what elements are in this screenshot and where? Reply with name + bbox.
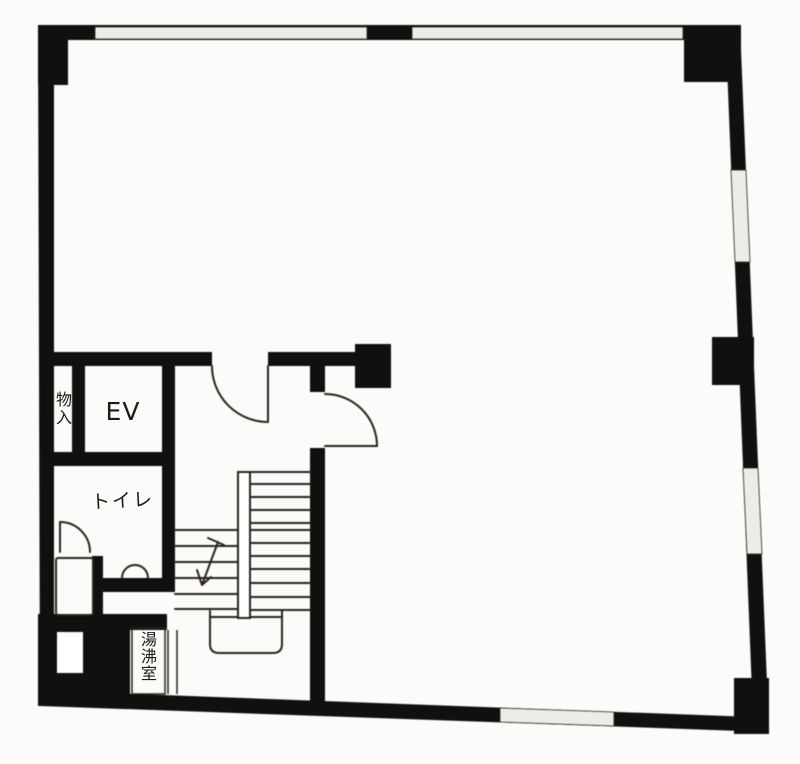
window-right-upper (731, 170, 750, 262)
elevator-right-wall (162, 366, 175, 592)
window-right-lower (743, 468, 762, 554)
door-hall-swing-arc (212, 366, 268, 422)
room-label-elevator: EV (97, 397, 149, 426)
stair-treads-left-flight (175, 546, 238, 609)
hall-right-wall-upper (310, 352, 325, 392)
bottom-left-alcove (57, 632, 83, 673)
core-top-wall-left (54, 352, 212, 366)
elevator-bottom-wall (54, 452, 175, 466)
toilet-bowl-icon (122, 565, 148, 578)
washstand (56, 558, 93, 615)
staircase (175, 472, 310, 653)
door-toilet (60, 522, 90, 552)
room-label-kitchenette: 湯沸室 (135, 631, 159, 695)
window-top-right (412, 27, 683, 39)
door-hall (212, 366, 268, 422)
hall-right-wall-lower (310, 448, 325, 702)
window-bottom (500, 708, 614, 726)
window-top-left (95, 27, 367, 39)
toilet-bottom-wall (92, 578, 167, 592)
door-main-room (325, 394, 377, 446)
corner-pillar-bottom-right (734, 678, 769, 734)
room-label-toilet: トイレ (90, 484, 154, 514)
kitchenette-left-wall (115, 630, 130, 698)
corner-pillar-top-right (684, 25, 741, 82)
kitchenette-right-partition (168, 630, 177, 694)
corner-pillar-top-left (38, 25, 68, 85)
floor-plan-drawing (0, 0, 800, 764)
stair-treads-right-flight (250, 484, 310, 610)
windows (95, 27, 762, 726)
door-toilet-swing-arc (60, 522, 90, 552)
door-main-room-swing-arc (325, 394, 377, 446)
pillar-right-mid (712, 337, 754, 385)
stair-center-divider (238, 472, 250, 618)
core-corner-pillar (355, 344, 391, 388)
room-label-storage: 物入 (50, 391, 74, 443)
floor-plan: EV 物入 トイレ 湯沸室 (0, 0, 800, 764)
